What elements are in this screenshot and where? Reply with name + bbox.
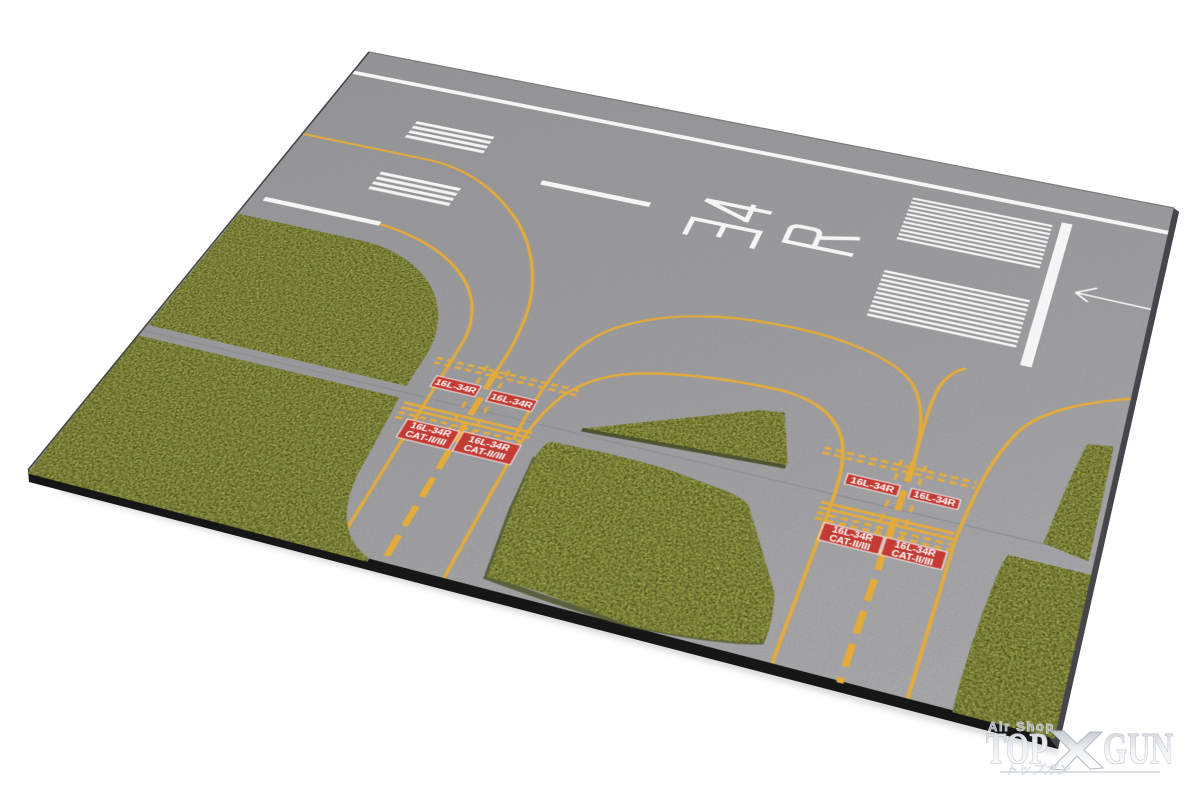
svg-text:トップガン: トップガン — [1003, 762, 1073, 777]
svg-text:GUN: GUN — [1103, 724, 1173, 773]
